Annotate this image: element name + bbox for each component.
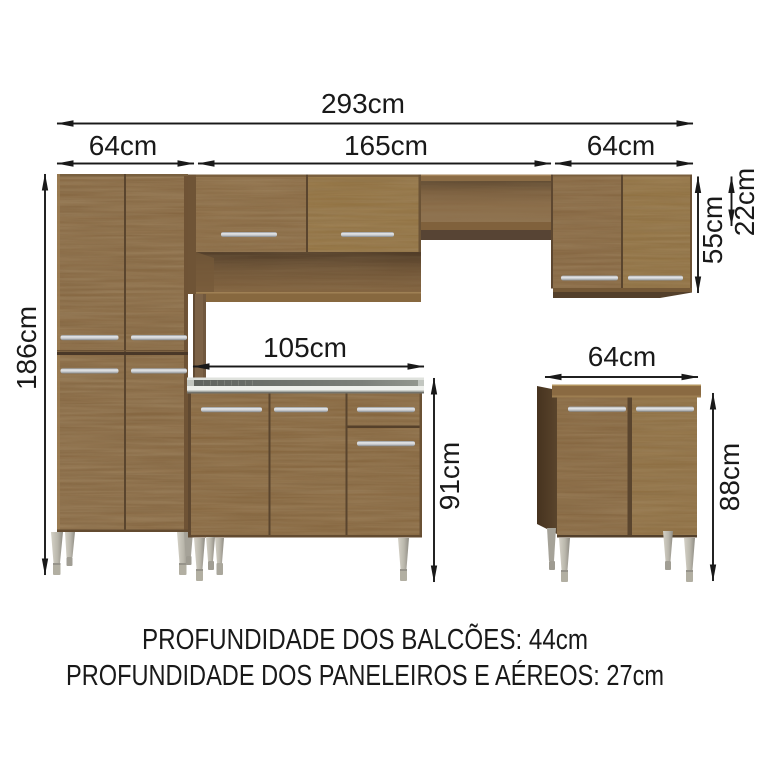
- svg-text:PROFUNDIDADE DOS BALCÕES: 44cm: PROFUNDIDADE DOS BALCÕES: 44cm: [142, 624, 588, 656]
- svg-text:55cm: 55cm: [697, 196, 728, 264]
- svg-text:186cm: 186cm: [11, 306, 42, 390]
- svg-text:293cm: 293cm: [321, 88, 405, 119]
- svg-text:22cm: 22cm: [729, 168, 760, 236]
- svg-text:91cm: 91cm: [434, 442, 465, 510]
- svg-text:105cm: 105cm: [263, 332, 347, 363]
- svg-text:88cm: 88cm: [714, 443, 745, 511]
- svg-text:64cm: 64cm: [587, 130, 655, 161]
- svg-text:165cm: 165cm: [344, 130, 428, 161]
- svg-text:64cm: 64cm: [588, 341, 656, 372]
- svg-text:64cm: 64cm: [89, 130, 157, 161]
- svg-text:PROFUNDIDADE DOS PANELEIROS E: PROFUNDIDADE DOS PANELEIROS E AÉREOS: 27…: [66, 660, 664, 692]
